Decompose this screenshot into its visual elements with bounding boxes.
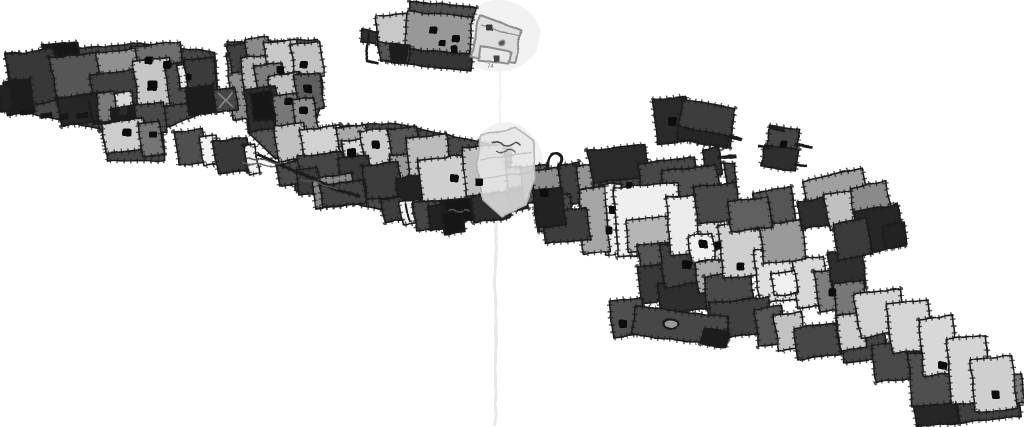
svg-text:74: 74 bbox=[487, 64, 494, 70]
